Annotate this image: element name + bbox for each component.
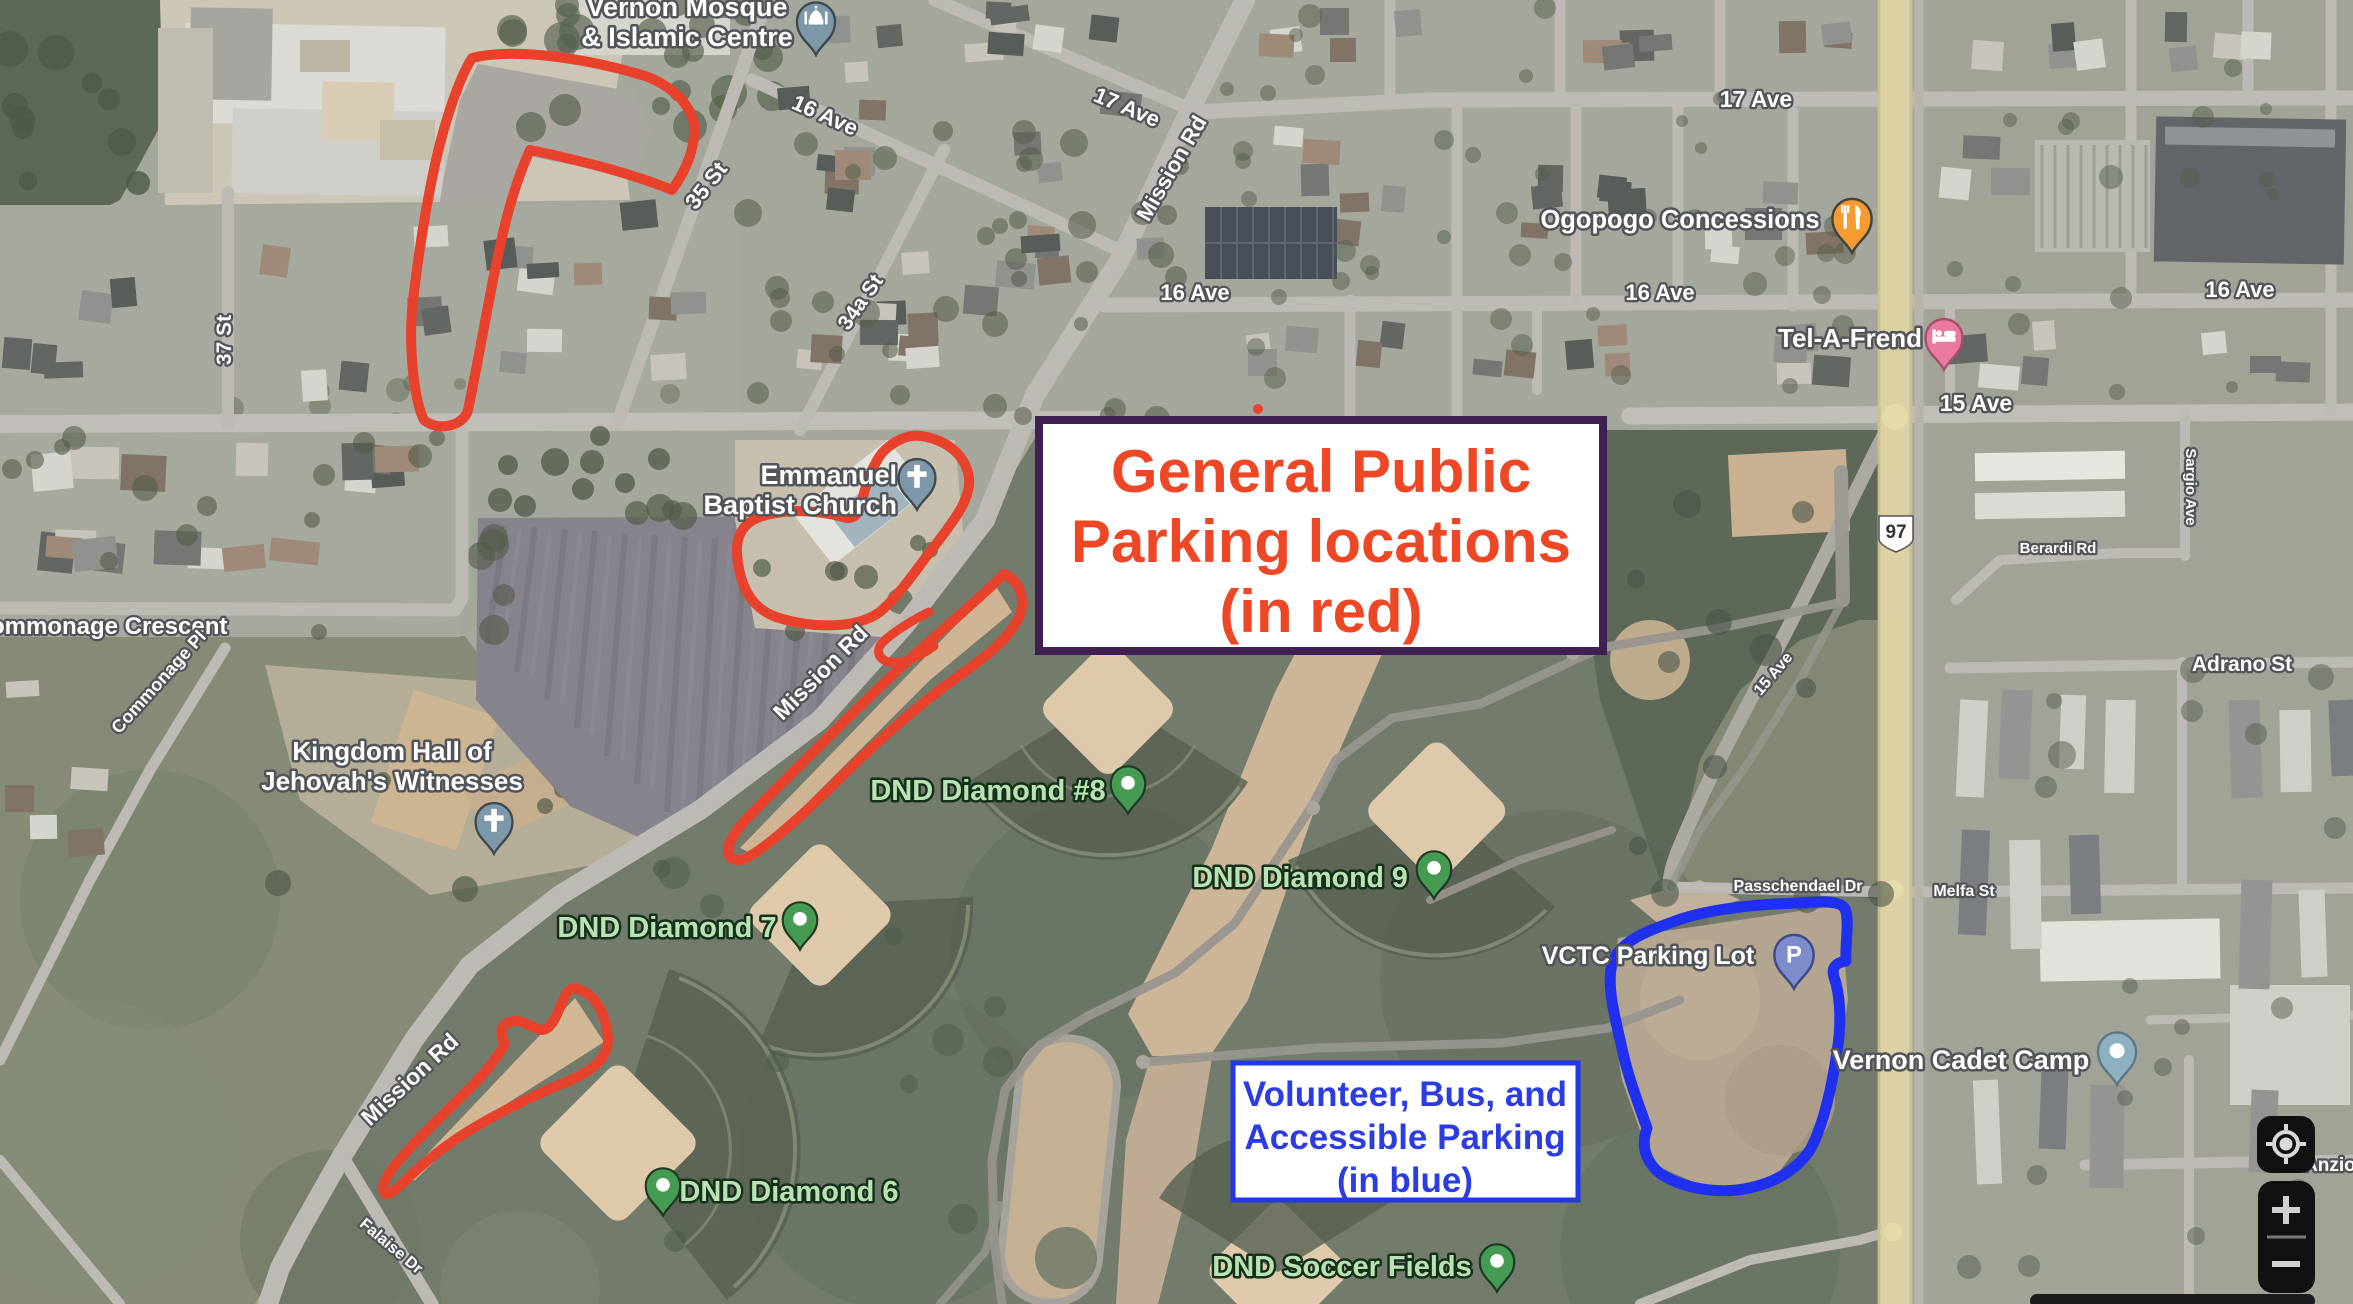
svg-text:Adrano St: Adrano St	[2192, 653, 2292, 676]
svg-text:Vernon Mosque: Vernon Mosque	[586, 0, 787, 22]
svg-text:16 Ave: 16 Ave	[2205, 277, 2274, 302]
svg-text:16 Ave: 16 Ave	[1160, 280, 1229, 305]
svg-text:Tel-A-Frend: Tel-A-Frend	[1778, 323, 1922, 353]
svg-text:Jehovah's Witnesses: Jehovah's Witnesses	[261, 766, 523, 796]
svg-text:97: 97	[1885, 522, 1906, 543]
svg-text:Baptist Church: Baptist Church	[703, 490, 897, 520]
svg-text:P: P	[1786, 942, 1802, 969]
svg-text:16 Ave: 16 Ave	[1625, 280, 1694, 305]
svg-text:DND Soccer Fields: DND Soccer Fields	[1212, 1251, 1471, 1283]
svg-text:VCTC Parking Lot: VCTC Parking Lot	[1542, 942, 1755, 970]
svg-text:Vernon Cadet Camp: Vernon Cadet Camp	[1833, 1045, 2090, 1075]
svg-text:Accessible Parking: Accessible Parking	[1245, 1118, 1566, 1157]
svg-text:DND Diamond #8: DND Diamond #8	[870, 775, 1105, 807]
svg-text:Kingdom Hall of: Kingdom Hall of	[292, 736, 492, 766]
svg-text:Emmanuel: Emmanuel	[760, 460, 897, 490]
svg-text:Sargio Ave: Sargio Ave	[2182, 448, 2199, 525]
svg-text:Volunteer, Bus, and: Volunteer, Bus, and	[1243, 1075, 1567, 1114]
svg-text:DND Diamond 6: DND Diamond 6	[679, 1176, 898, 1208]
svg-text:37 St: 37 St	[213, 315, 236, 365]
svg-text:Ogopogo Concessions: Ogopogo Concessions	[1540, 206, 1819, 234]
svg-text:(in blue): (in blue)	[1337, 1161, 1473, 1200]
svg-text:Parking locations: Parking locations	[1071, 508, 1571, 575]
svg-text:& Islamic Centre: & Islamic Centre	[581, 22, 793, 52]
svg-text:Passchendael Dr: Passchendael Dr	[1734, 878, 1863, 895]
svg-text:17 Ave: 17 Ave	[1720, 86, 1792, 112]
svg-text:(in red): (in red)	[1219, 578, 1422, 645]
svg-text:General Public: General Public	[1111, 438, 1531, 505]
svg-text:15 Ave: 15 Ave	[1940, 390, 2012, 416]
svg-text:Berardi Rd: Berardi Rd	[2020, 540, 2097, 557]
svg-text:DND Diamond 9: DND Diamond 9	[1192, 862, 1407, 894]
svg-text:DND Diamond 7: DND Diamond 7	[557, 912, 776, 944]
svg-text:Melfa St: Melfa St	[1933, 883, 1995, 900]
